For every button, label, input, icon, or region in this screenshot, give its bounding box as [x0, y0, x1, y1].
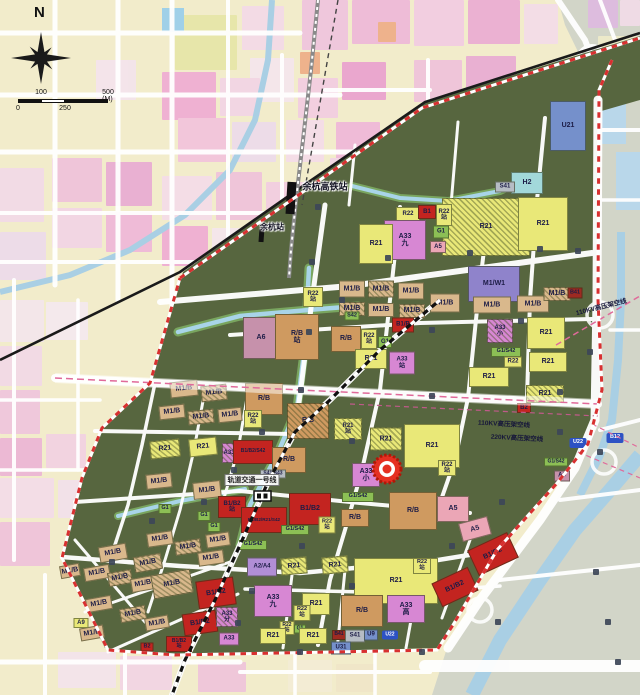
scale-bar: 100 500 (M) 0 250 [8, 84, 118, 114]
scale-seg-1 [18, 99, 41, 103]
map-text-label: 110KV高压架空线 [575, 295, 628, 317]
map-text-label: 余杭高铁站 [302, 180, 347, 193]
map-text-label: 轨道交通一号线 [225, 474, 280, 486]
map-text-label: 110KV高压架空线 [478, 417, 530, 430]
map-text-label: 余杭站 [260, 222, 284, 233]
scale-seg-3 [65, 99, 108, 103]
compass-star-icon [8, 22, 78, 92]
planning-map: U21H2S41R21R21R22B1R22 站G1A5A33 九R21M1/W… [0, 0, 640, 695]
scale-250: 250 [59, 105, 71, 112]
scale-0: 0 [16, 105, 20, 112]
scale-seg-2 [41, 99, 65, 103]
map-text-label: 220KV高压架空线 [491, 431, 544, 444]
scale-100: 100 [35, 89, 47, 96]
compass-north-label: N [34, 4, 45, 21]
